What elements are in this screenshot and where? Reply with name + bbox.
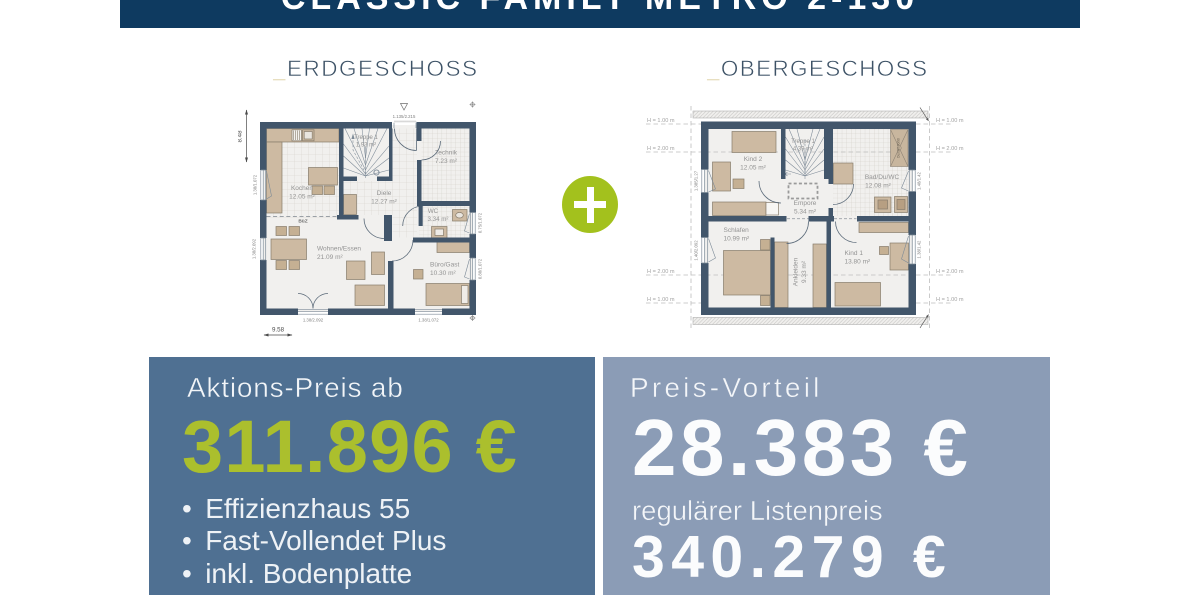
svg-text:1.38/1.42: 1.38/1.42 [917, 240, 922, 259]
svg-text:H = 2.00 m: H = 2.00 m [936, 269, 964, 275]
svg-text:1.40/2.092: 1.40/2.092 [694, 240, 699, 261]
svg-text:BüZ: BüZ [298, 219, 307, 225]
svg-text:H = 1.00 m: H = 1.00 m [936, 297, 964, 303]
svg-text:Bad/Du/WC: Bad/Du/WC [865, 174, 900, 181]
svg-text:H = 2.00 m: H = 2.00 m [647, 146, 675, 152]
svg-text:12.27 m²: 12.27 m² [371, 199, 397, 206]
svg-text:12.08 m²: 12.08 m² [865, 183, 891, 190]
svg-text:H = 1.00 m: H = 1.00 m [936, 118, 964, 124]
svg-text:H = 1.00 m: H = 1.00 m [647, 297, 675, 303]
svg-text:Kochen: Kochen [291, 185, 313, 192]
svg-text:Ankleiden: Ankleiden [793, 257, 800, 286]
svg-text:0.88/1.072: 0.88/1.072 [478, 258, 483, 279]
svg-text:Büro/Gast: Büro/Gast [430, 262, 459, 269]
svg-text:1.38/1.072: 1.38/1.072 [253, 174, 258, 195]
svg-text:12.05 m²: 12.05 m² [740, 165, 766, 172]
svg-text:1.93 m²: 1.93 m² [356, 143, 376, 149]
svg-text:Treppe 1: Treppe 1 [354, 135, 378, 141]
svg-text:1.385/1.27: 1.385/1.27 [694, 170, 699, 191]
svg-text:13.80 m²: 13.80 m² [845, 259, 871, 266]
svg-text:10.99 m²: 10.99 m² [724, 236, 750, 243]
svg-text:H = 2.00 m: H = 2.00 m [647, 269, 675, 275]
svg-text:Wohnen/Essen: Wohnen/Essen [317, 246, 361, 253]
svg-text:12.05 m²: 12.05 m² [289, 194, 315, 201]
svg-text:0.75/1.072: 0.75/1.072 [478, 212, 483, 233]
svg-text:9.33 m²: 9.33 m² [801, 260, 808, 283]
svg-text:1.38/2.092: 1.38/2.092 [252, 238, 257, 259]
svg-text:Dusche 90/90: Dusche 90/90 [897, 138, 901, 158]
svg-text:H = 2.00 m: H = 2.00 m [936, 146, 964, 152]
svg-text:8.48: 8.48 [238, 130, 244, 143]
svg-text:7.23 m²: 7.23 m² [435, 158, 458, 165]
svg-text:1.48/1.42: 1.48/1.42 [917, 171, 922, 190]
svg-text:Treppe 1: Treppe 1 [791, 139, 815, 145]
svg-text:Empore: Empore [794, 200, 817, 207]
svg-text:9.58: 9.58 [272, 327, 285, 334]
svg-text:WC: WC [428, 208, 439, 215]
svg-text:4.39 m²: 4.39 m² [793, 147, 813, 153]
svg-text:3.34 m²: 3.34 m² [428, 216, 449, 223]
svg-text:1.38/1.072: 1.38/1.072 [418, 318, 439, 323]
svg-text:H = 1.00 m: H = 1.00 m [647, 118, 675, 124]
svg-text:5.34 m²: 5.34 m² [794, 209, 817, 216]
svg-text:21.09 m²: 21.09 m² [317, 254, 343, 261]
svg-text:Schlafen: Schlafen [724, 227, 750, 234]
svg-text:10.30 m²: 10.30 m² [430, 270, 456, 277]
svg-text:1.135/2.215: 1.135/2.215 [393, 114, 416, 119]
svg-text:1.38/2.092: 1.38/2.092 [303, 318, 324, 323]
svg-text:Kind 2: Kind 2 [744, 156, 763, 163]
svg-text:Kind 1: Kind 1 [845, 250, 864, 257]
svg-text:Diele: Diele [377, 190, 392, 197]
